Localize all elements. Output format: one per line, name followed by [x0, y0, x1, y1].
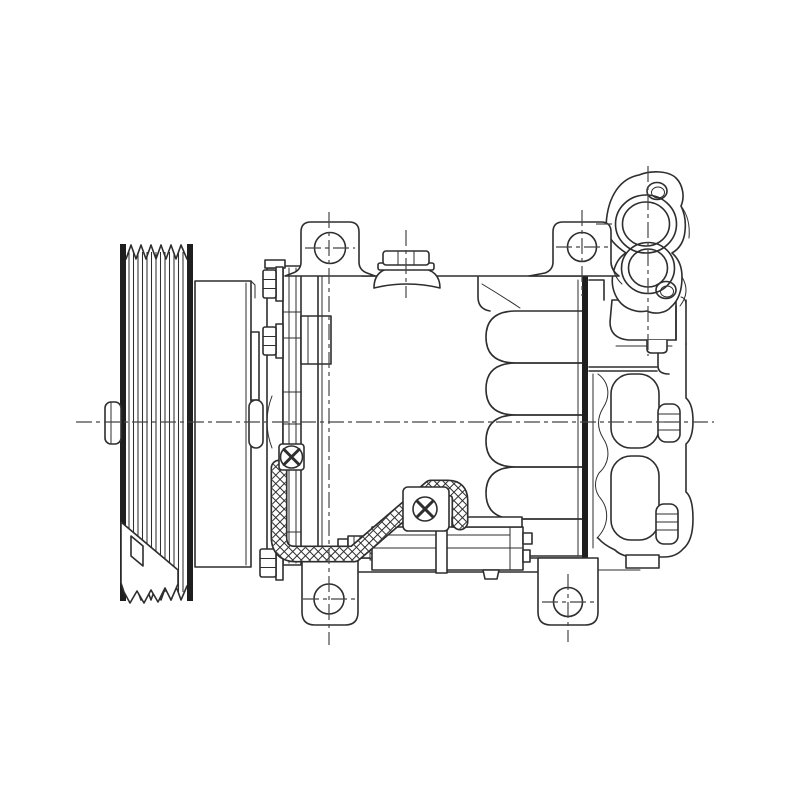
- shaft-hub: [105, 402, 121, 444]
- mounting-ear-right: [529, 222, 622, 284]
- clutch-drum: [195, 281, 255, 567]
- screw-pad-connector: [403, 487, 449, 531]
- gasket-plate: [578, 276, 588, 558]
- technical-drawing-canvas: [0, 0, 800, 800]
- mounting-lug-left: [302, 558, 358, 625]
- fitting-boss-upper: [658, 404, 680, 442]
- compressor-body: [318, 276, 584, 558]
- fill-plug: [374, 251, 440, 288]
- hex-bolt-top: [263, 267, 283, 301]
- fitting-boss-lower: [656, 504, 678, 544]
- screw-pad-front: [279, 444, 304, 470]
- hex-bolt-middle: [263, 324, 283, 358]
- compressor-line-art: [0, 0, 800, 800]
- pulley: [105, 244, 193, 603]
